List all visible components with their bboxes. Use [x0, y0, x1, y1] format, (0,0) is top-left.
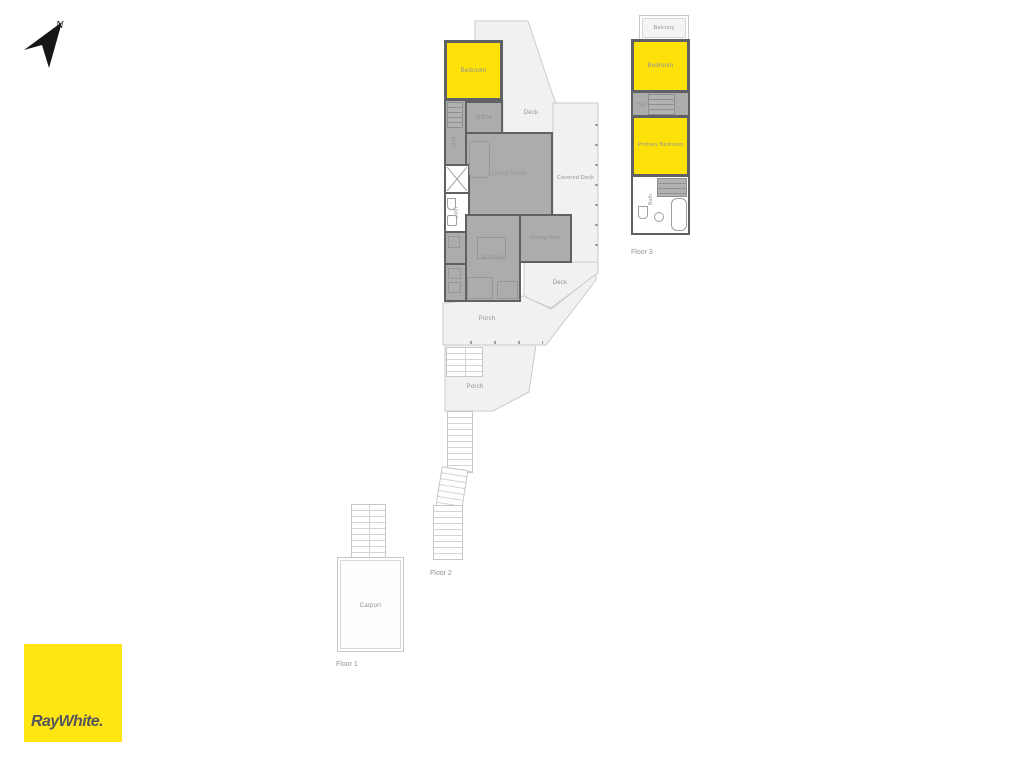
long-stairs-lower [433, 505, 463, 560]
hall-floor3-label: Hall [637, 103, 646, 108]
sink-fixture [447, 215, 457, 226]
shower-closet-floor2 [444, 164, 470, 194]
stair-divider-f1 [369, 505, 370, 557]
floor1-label: Floor 1 [336, 661, 358, 668]
toilet-fixture-floor3 [638, 206, 648, 219]
balcony-floor3: Balcony [639, 15, 689, 41]
office-label: Office [476, 115, 493, 121]
deck-top-label: Deck [516, 110, 546, 116]
porch-stairs [446, 347, 483, 377]
long-stairs-upper [447, 411, 473, 473]
carport-label: Carport [338, 603, 403, 609]
kitchen-counter-outline [467, 277, 493, 299]
bath-floor3-label: Bath [649, 194, 654, 205]
hall-label: Hall [453, 136, 459, 146]
porch-lower-label: Porch [458, 384, 492, 390]
porch-balustrade-ticks [448, 341, 543, 344]
toilet-fixture [447, 198, 456, 210]
stair-divider [465, 348, 466, 376]
room-carport-floor1: Carport [337, 557, 404, 652]
floor3-label: Floor 3 [631, 249, 653, 256]
kitchen-island-outline [477, 237, 506, 259]
storage-outline-b [448, 282, 461, 293]
hall-stairs-floor2 [447, 102, 463, 128]
bedroom-floor3-label: Bedroom [648, 63, 674, 69]
covered-deck-label: Covered Deck [553, 176, 598, 182]
balcony-label: Balcony [640, 26, 688, 32]
deck-bottom-label: Deck [545, 280, 575, 286]
storage-outline-a [448, 268, 461, 279]
room-dining-floor2: Dining Area [519, 214, 572, 263]
room-primary-bedroom-floor3: Primary Bedroom [631, 115, 690, 177]
bath-closet-floor3 [657, 178, 687, 197]
raywhite-logo: RayWhite. [24, 644, 122, 742]
floor2-label: Floor 2 [430, 570, 452, 577]
living-room-label: Living Room [491, 171, 527, 177]
sink-fixture-floor3 [654, 212, 664, 222]
room-bedroom-floor2: Bedroom [444, 40, 503, 101]
carport-stairs [351, 504, 386, 558]
room-office-floor2: Office [465, 101, 503, 134]
primary-bedroom-label: Primary Bedroom [638, 143, 684, 149]
bathtub-fixture [671, 198, 687, 231]
stove-outline [497, 281, 518, 299]
bedroom-label: Bedroom [461, 68, 487, 74]
room-hall-floor3: Hall [631, 91, 690, 117]
compass-north-label: N [56, 21, 64, 31]
hall-stairs-floor3 [648, 94, 675, 115]
room-bedroom-floor3: Bedroom [631, 39, 690, 93]
raywhite-logo-text: RayWhite. [31, 713, 103, 731]
laundry-appliance-outline [448, 236, 460, 248]
room-bath-floor3: Bath [631, 175, 690, 235]
porch-upper-label: Porch [470, 316, 504, 322]
floorplan-page: { "compass": { "north_label": "N" }, "co… [0, 0, 1024, 768]
sofa-outline [469, 141, 490, 178]
covered-deck-balustrade-ticks [595, 106, 598, 260]
closet-cross-icon [447, 167, 467, 191]
dining-area-label: Dining Area [530, 236, 561, 242]
